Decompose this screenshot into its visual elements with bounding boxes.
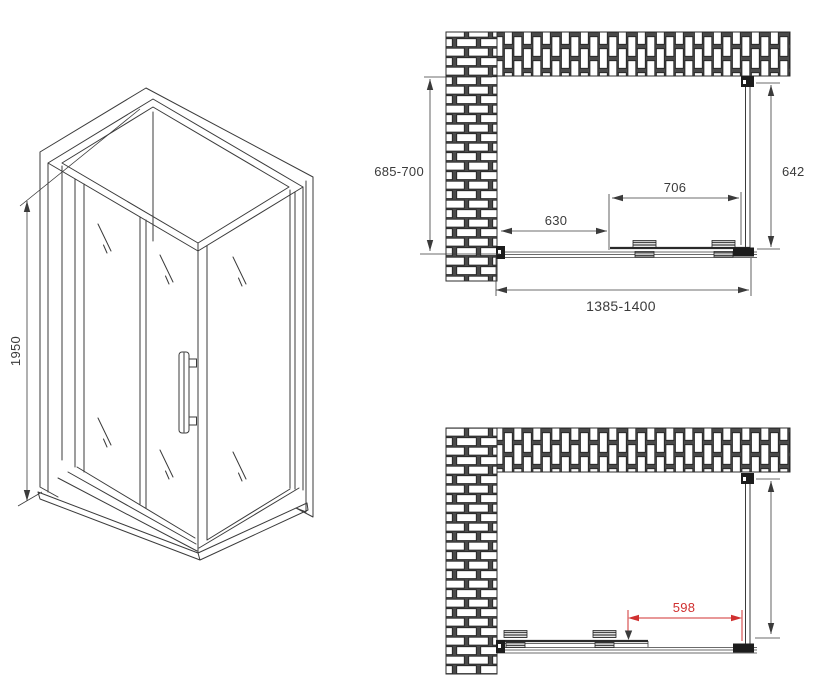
iso-door-frames [62,112,207,553]
segment-label: 630 [545,213,568,228]
track [497,648,757,654]
dimension-height: 1950 [8,109,140,506]
wall-bracket-detail [743,477,746,481]
dimension-glass: 642 [768,85,805,247]
iso-side-panel [290,187,303,490]
iso-tray [38,492,308,560]
wall-profile-detail [498,250,501,254]
brick-wall-horizontal [497,32,790,76]
technical-drawing-page: 1950 685-700 [0,0,822,686]
side-glass-panel [746,86,751,248]
wall-bracket [741,473,754,484]
brick-wall-vertical [446,32,497,281]
iso-bottom-rails [58,467,299,551]
iso-view: 1950 [8,88,313,560]
brick-wall-vertical [446,428,497,674]
depth-label: 685-700 [374,164,424,179]
iso-wall [40,88,313,517]
door-label: 706 [664,180,687,195]
glass-label: 642 [782,164,805,179]
opening-label: 598 [673,600,696,615]
top-plan-view: 685-700 642 706 630 1385-1400 [374,32,804,314]
brick-wall-horizontal [497,428,790,472]
iso-top-frame [48,99,303,492]
extension-lines [755,479,780,638]
dimension-segment: 630 [501,213,607,234]
dimension-depth: 685-700 [374,79,433,251]
total-width-label: 1385-1400 [586,298,656,314]
wall-bracket [741,76,754,87]
wall-profile-detail [498,644,501,648]
roller-assembly [504,631,616,648]
door-handle [179,352,197,433]
panel-corner-bracket [733,644,754,653]
dimension-door: 706 [612,180,739,201]
dimension-total-width: 1385-1400 [496,287,749,314]
glass-reflection-ticks [98,224,246,481]
shower-enclosure-drawing: 1950 685-700 [0,0,822,686]
panel-corner-bracket [733,248,754,257]
dimension-opening-red: 598 [625,600,742,641]
side-glass-panel [746,483,751,645]
bottom-plan-view: 598 [446,428,790,674]
wall-bracket-detail [743,80,746,84]
height-label: 1950 [8,336,23,366]
dimension-glass-unlabeled [768,481,774,634]
